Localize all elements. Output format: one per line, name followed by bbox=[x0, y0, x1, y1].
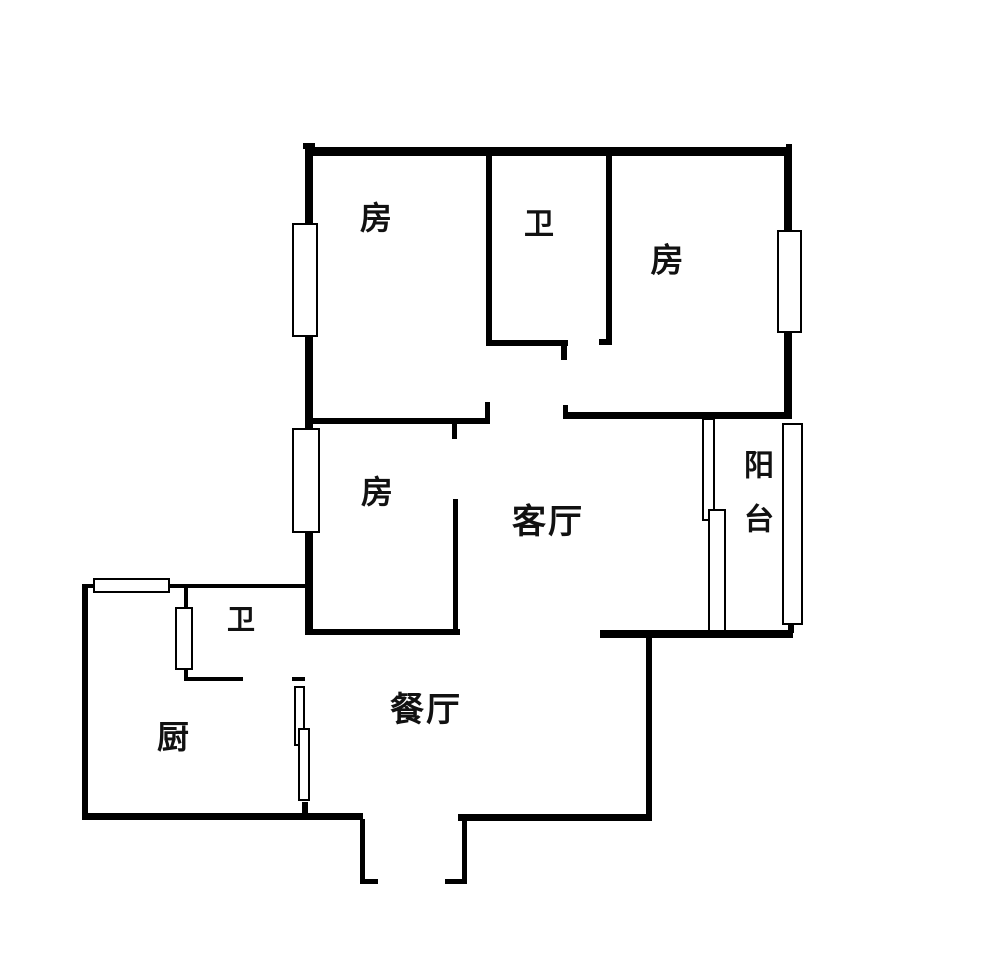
kitchen-left-wall bbox=[82, 584, 88, 820]
kitchen-bottom-wall bbox=[82, 813, 363, 820]
bed2-bottom-tick-up bbox=[563, 405, 568, 412]
entry-right-jamb bbox=[462, 814, 467, 884]
dining-right-wall bbox=[646, 636, 652, 820]
bed1-door-stub bbox=[485, 402, 490, 418]
room-label-bedroom-top-right: 房 bbox=[651, 244, 686, 277]
bed1-bath-divider bbox=[486, 153, 492, 343]
window-kitchen-top bbox=[93, 578, 170, 593]
room-label-bathroom-top: 卫 bbox=[524, 210, 556, 240]
dining-bottom-wall bbox=[458, 814, 652, 821]
floorplan-canvas: 房卫房房客厅阳台卫厨餐厅 bbox=[0, 0, 1000, 975]
window-bath2 bbox=[175, 607, 193, 670]
entry-left-jamb bbox=[360, 819, 365, 884]
bed2-bottom-wall bbox=[563, 412, 792, 419]
door-balcony-b bbox=[708, 509, 726, 632]
room-label-bedroom-top-left: 房 bbox=[360, 202, 394, 234]
window-bed3-left bbox=[292, 428, 320, 533]
top-wall bbox=[305, 147, 792, 156]
window-balcony-right bbox=[782, 423, 803, 625]
room-label-kitchen: 厨 bbox=[157, 721, 191, 753]
bath-right-foot bbox=[599, 339, 612, 345]
bath-right-wall bbox=[606, 153, 612, 345]
room-label-bathroom-lower: 卫 bbox=[227, 606, 257, 634]
bath-bottom-wall bbox=[486, 340, 568, 346]
dining-left-tick bbox=[302, 802, 308, 813]
room-label-balcony: 阳台 bbox=[740, 449, 770, 557]
door-balcony-a bbox=[702, 418, 715, 521]
entry-right-tick bbox=[445, 879, 467, 884]
bed1-bottom-tick-down bbox=[452, 424, 457, 439]
bed3-right-wall bbox=[453, 499, 458, 634]
door-dining-kitchen-b bbox=[298, 728, 310, 801]
room-label-bedroom-middle: 房 bbox=[361, 476, 395, 508]
window-bed1-left bbox=[292, 223, 318, 337]
living-dining-wall-left bbox=[305, 629, 460, 635]
window-bed2-right bbox=[777, 230, 802, 333]
left-wall bbox=[305, 147, 313, 634]
living-dining-wall-right bbox=[600, 630, 793, 638]
bath-bottom-tick bbox=[561, 346, 567, 360]
bath2-bottom-wall bbox=[184, 677, 243, 681]
room-label-living-room: 客厅 bbox=[512, 505, 584, 539]
entry-left-tick bbox=[360, 879, 378, 884]
bed1-bottom-wall bbox=[305, 418, 490, 424]
bath2-bottom-stub bbox=[292, 677, 305, 681]
room-label-dining-room: 餐厅 bbox=[390, 693, 462, 727]
